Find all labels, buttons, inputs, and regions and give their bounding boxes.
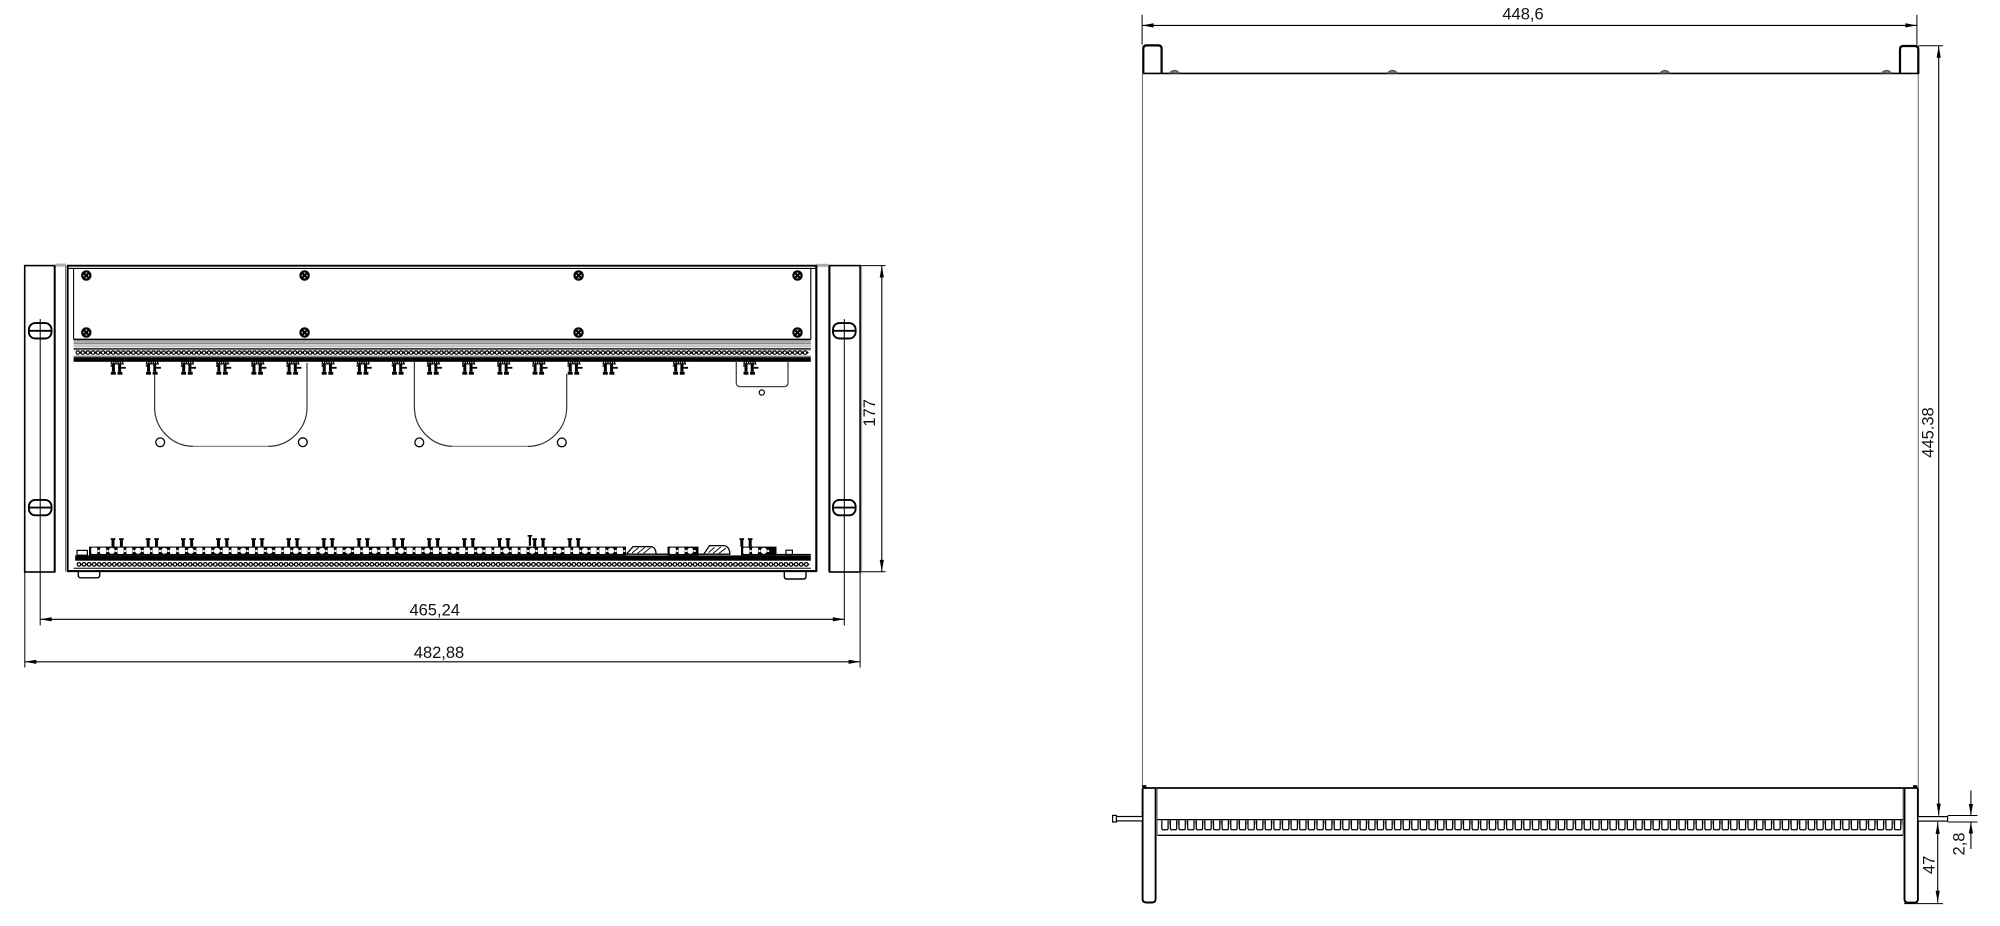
svg-text:2,8: 2,8 xyxy=(1951,833,1969,856)
svg-text:177: 177 xyxy=(861,399,879,427)
svg-text:445.38: 445.38 xyxy=(1920,407,1938,457)
svg-text:47: 47 xyxy=(1921,856,1939,874)
svg-text:448,6: 448,6 xyxy=(1502,6,1543,24)
svg-text:482,88: 482,88 xyxy=(414,644,464,662)
svg-text:465,24: 465,24 xyxy=(409,602,459,620)
